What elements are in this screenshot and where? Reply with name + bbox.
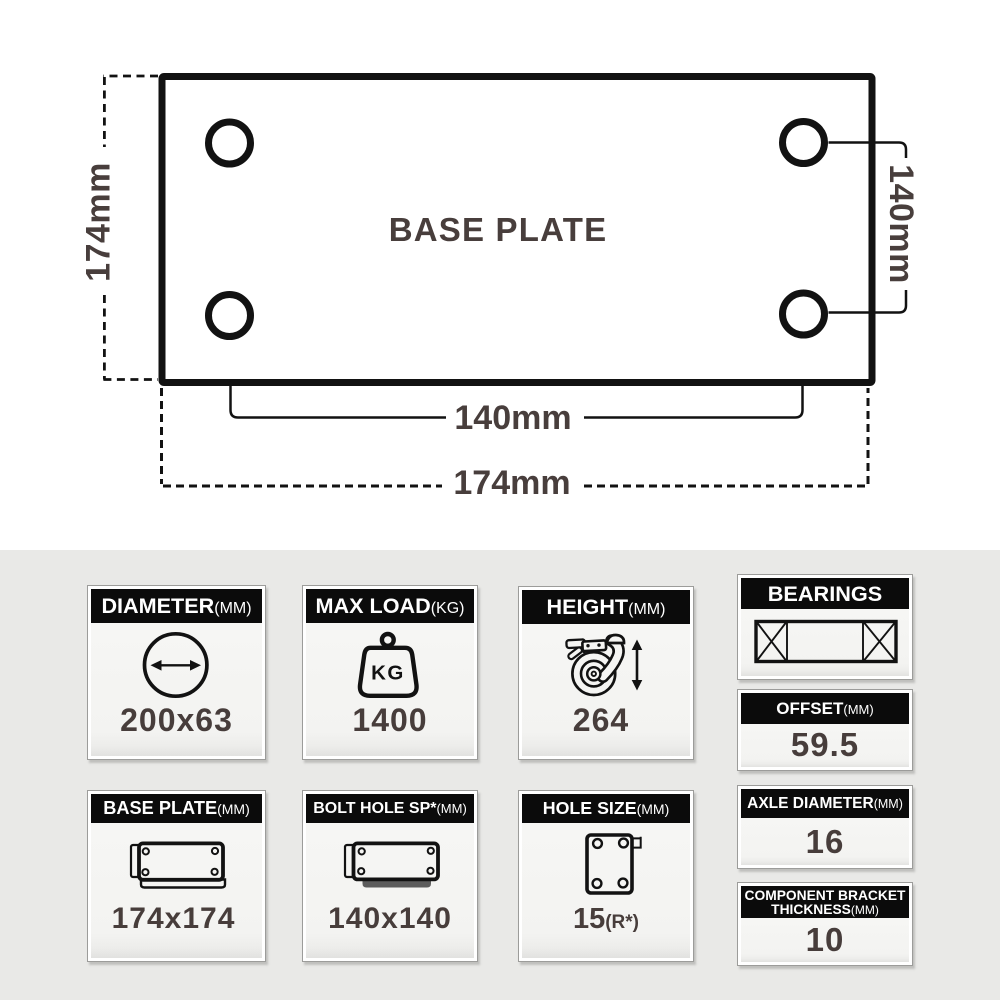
svg-text:140mm: 140mm: [454, 399, 571, 437]
svg-text:174mm: 174mm: [80, 162, 118, 282]
svg-text:KG: KG: [371, 662, 405, 685]
svg-text:140mm: 140mm: [882, 164, 920, 284]
svg-text:174mm: 174mm: [453, 464, 570, 502]
svg-text:BASE PLATE: BASE PLATE: [389, 211, 608, 248]
